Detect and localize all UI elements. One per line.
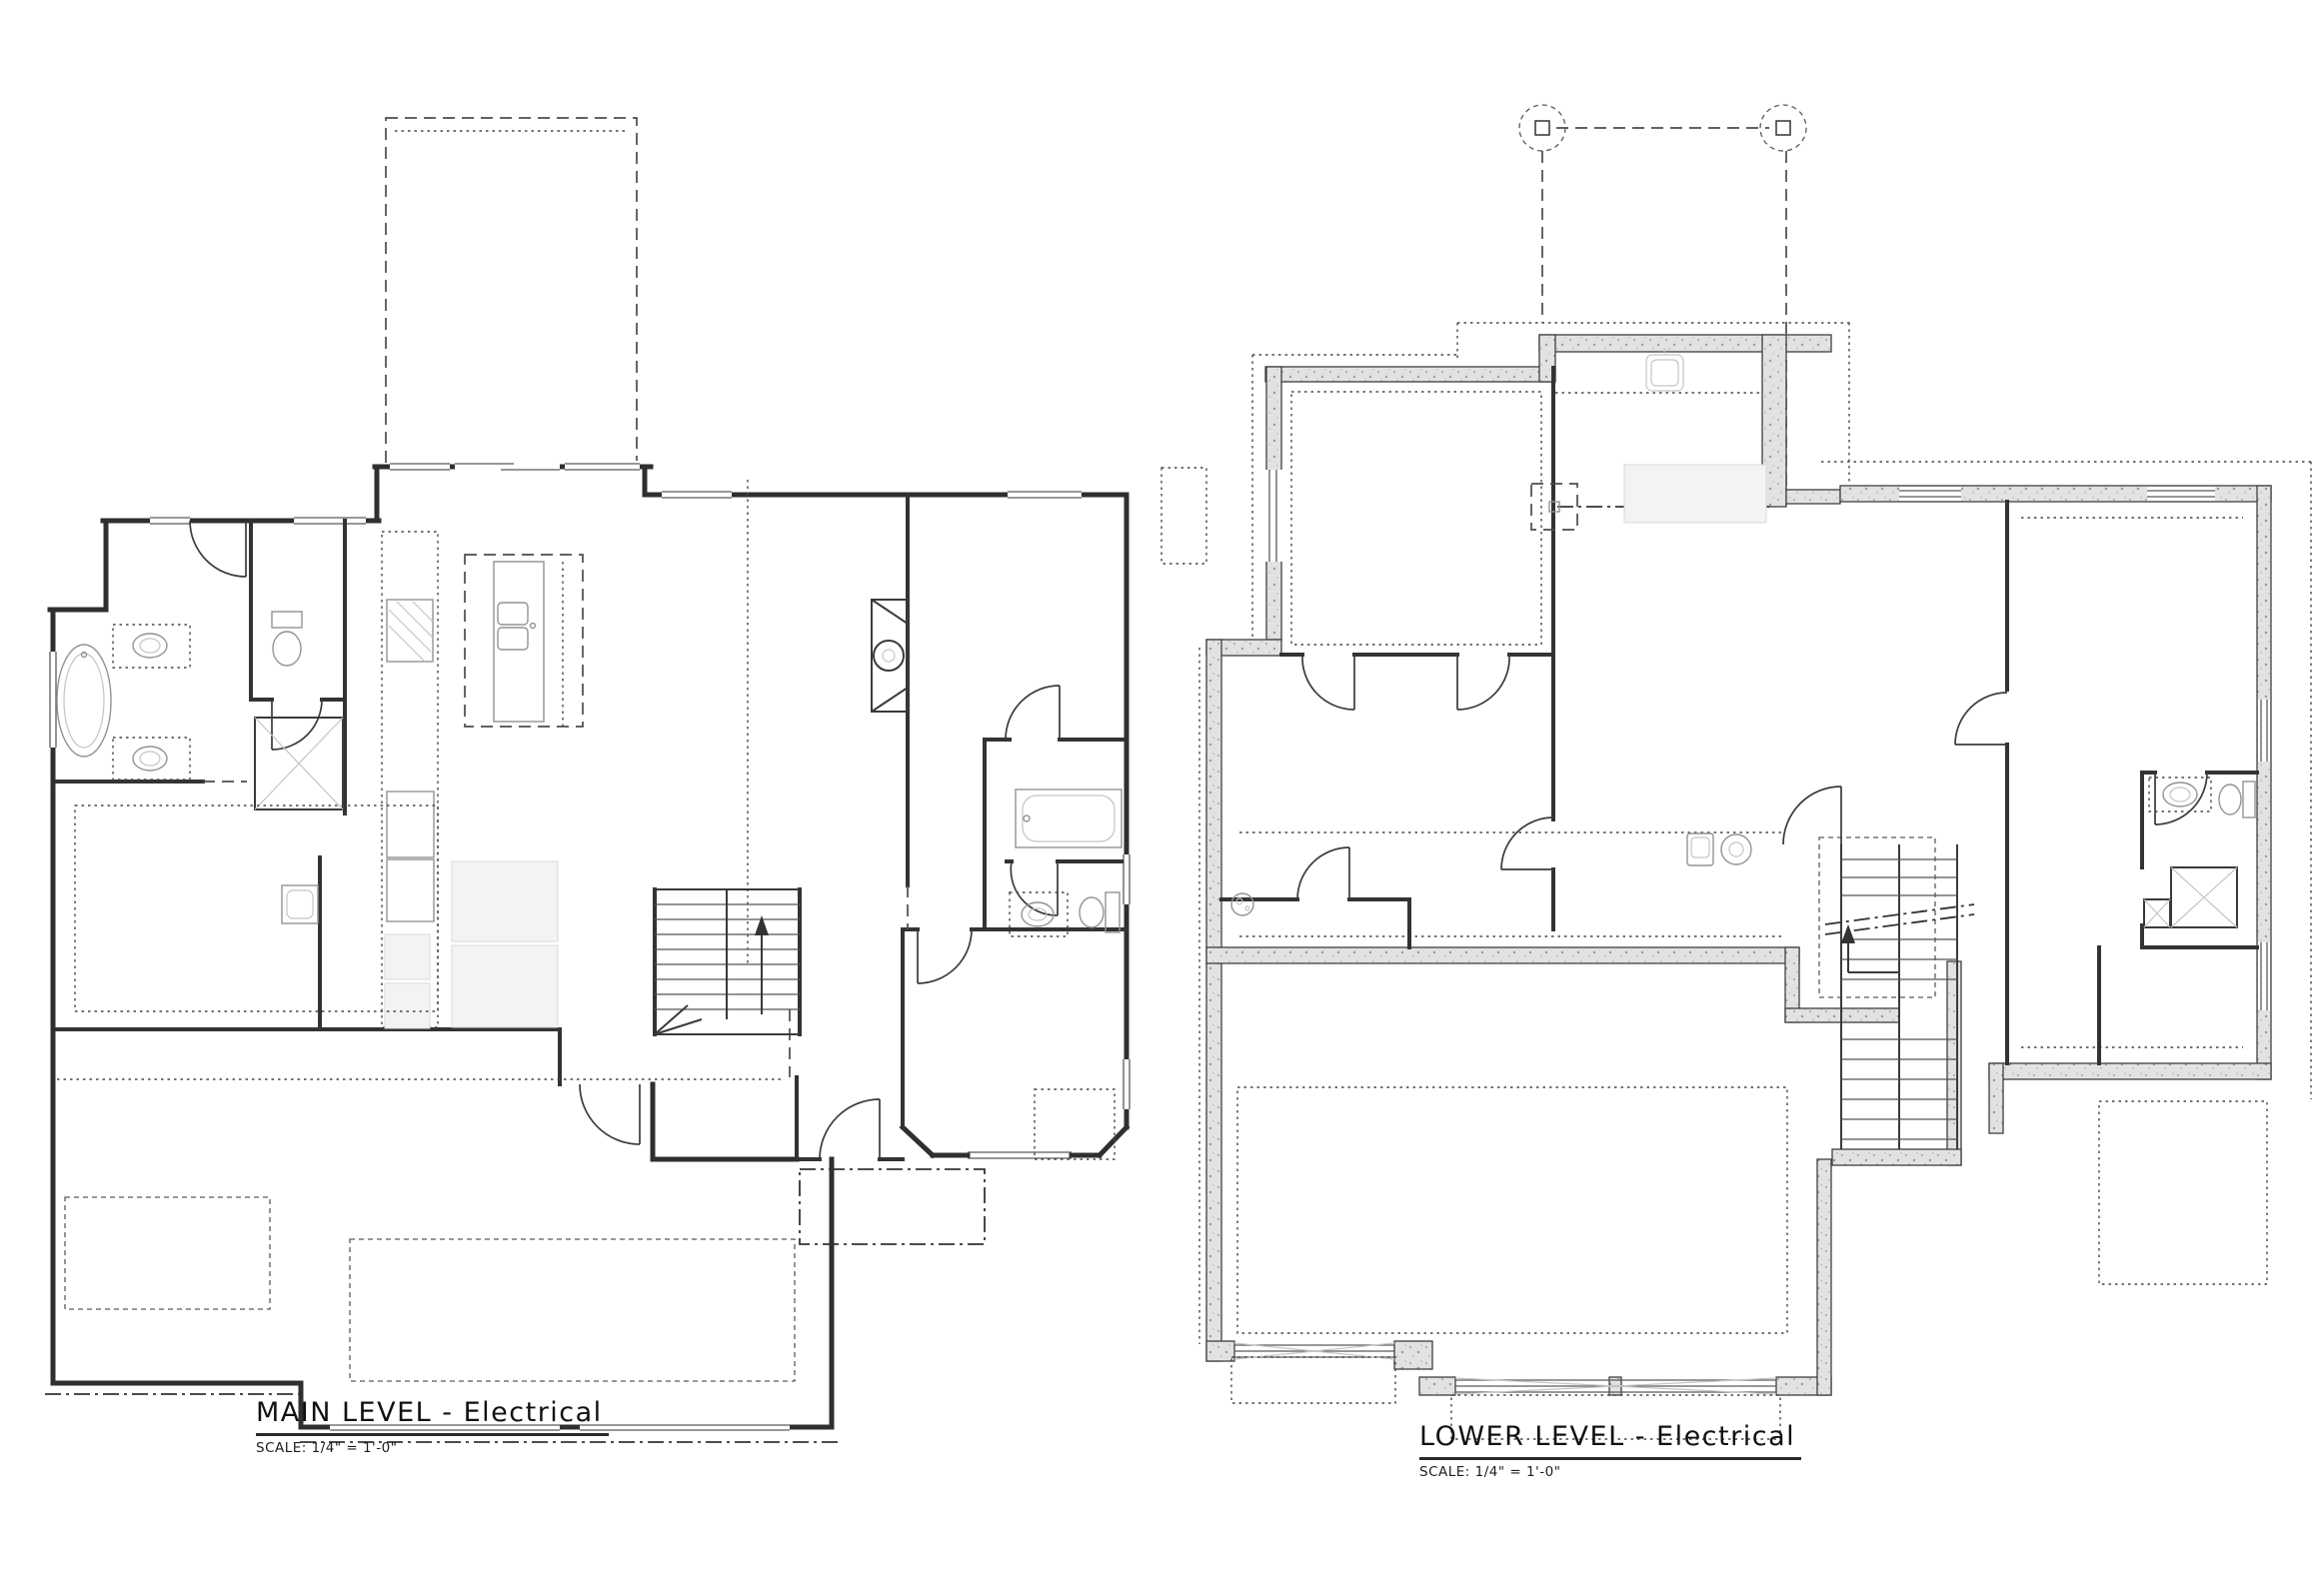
drawing-sheet: MAIN LEVEL - Electrical SCALE: 1/4" = 1'… (0, 0, 2324, 1589)
island-sink-icon (498, 603, 528, 625)
lower-level-caption: LOWER LEVEL - Electrical SCALE: 1/4" = 1… (1419, 1421, 1801, 1480)
sink-icon (133, 634, 167, 658)
soaking-tub-icon (57, 645, 111, 757)
mechanical-icons (1231, 833, 1751, 915)
garage (65, 1197, 795, 1381)
kitchen-island (465, 555, 583, 727)
doors (190, 521, 1060, 1159)
front-porch (800, 1089, 1115, 1244)
lower-level-plan (1162, 105, 2311, 1439)
plan-title: MAIN LEVEL - Electrical (256, 1397, 609, 1436)
dryer-icon (385, 983, 430, 1028)
plan-title: LOWER LEVEL - Electrical (1419, 1421, 1801, 1460)
post-icon (1776, 121, 1790, 135)
porch-outline (386, 118, 637, 467)
bathtub-icon (1016, 790, 1122, 847)
main-level-caption: MAIN LEVEL - Electrical SCALE: 1/4" = 1'… (256, 1397, 609, 1456)
doors (1297, 655, 2207, 899)
toilet-icon (2243, 782, 2255, 817)
sink-icon (2163, 783, 2197, 806)
floor-plan-drawing (0, 0, 2324, 1589)
stairs-icon (653, 889, 800, 1034)
sink-icon (133, 747, 167, 771)
toilet-icon (272, 612, 302, 628)
plan-scale: SCALE: 1/4" = 1'-0" (1419, 1464, 1801, 1480)
washer-icon (385, 934, 430, 979)
furnace-icon (1721, 834, 1751, 864)
fridge-icon (387, 792, 434, 857)
plan-scale: SCALE: 1/4" = 1'-0" (256, 1440, 609, 1456)
kitchen (382, 480, 748, 1028)
interior-walls (57, 495, 1127, 1159)
toilet-icon (1106, 892, 1120, 932)
exterior-walls (45, 467, 1127, 1442)
post-icon (1535, 121, 1549, 135)
floor-drain-icon (1231, 893, 1253, 915)
kitchen-above-ghost (1624, 348, 1766, 523)
main-level-plan (45, 118, 1133, 1442)
fireplace-icon (872, 600, 908, 712)
walk-in-closet (75, 805, 438, 1011)
